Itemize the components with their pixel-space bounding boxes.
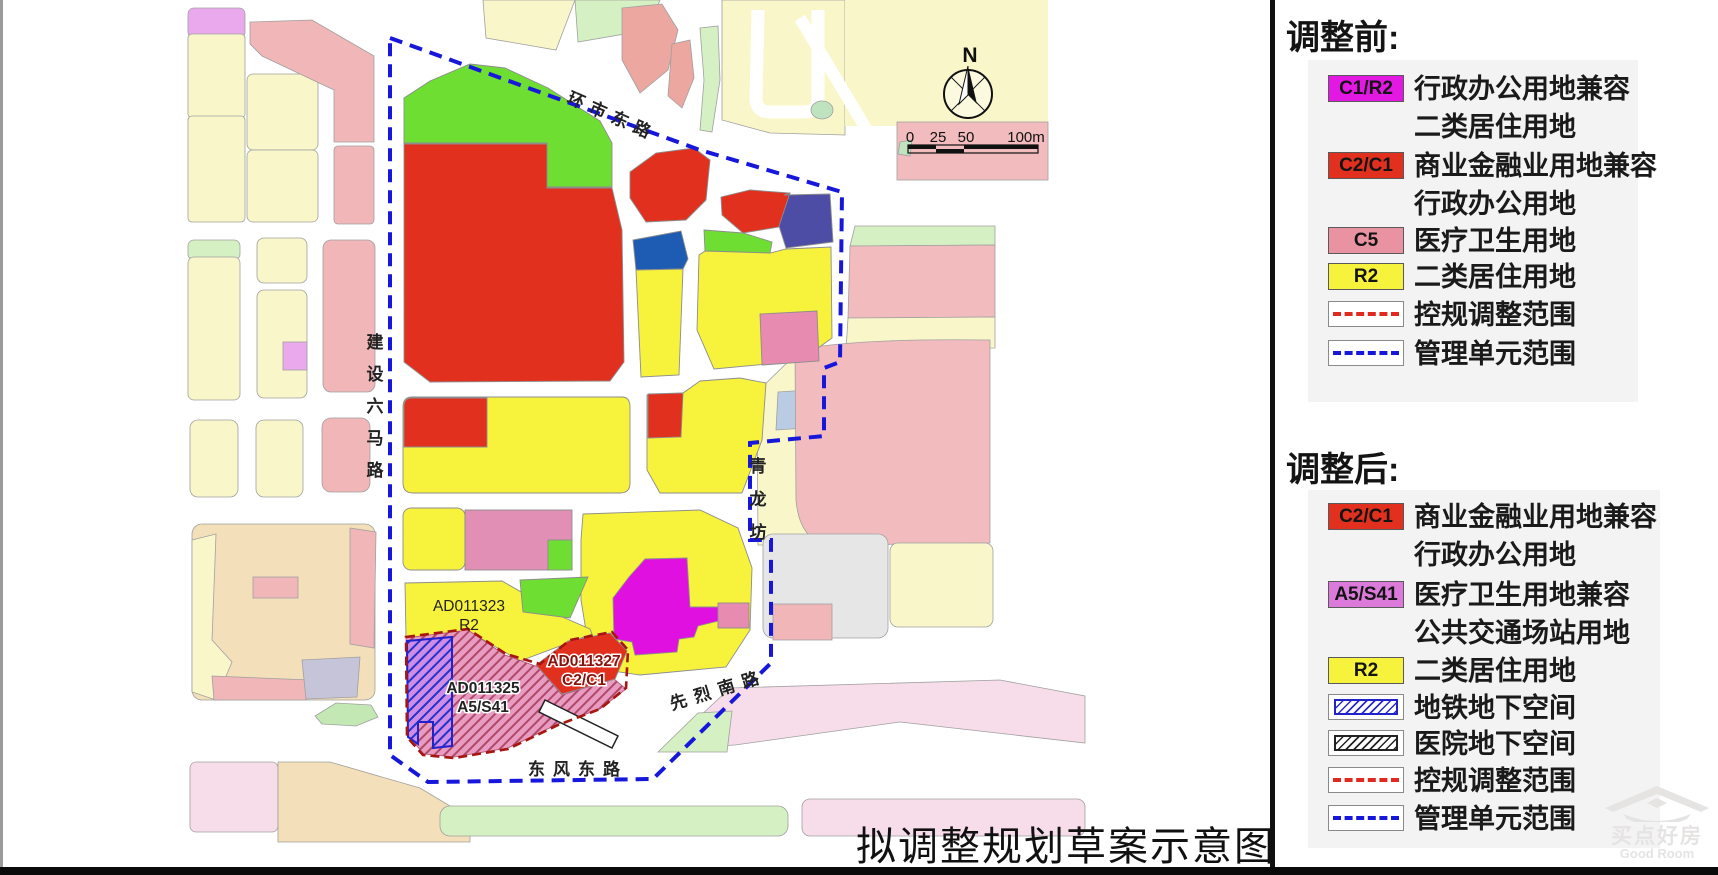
- planning-map: 环市东路 建 设 六 马 路 青 龙 坊 先烈南路 东风东路 AD011323 …: [0, 0, 1270, 867]
- parcel: [483, 0, 575, 50]
- parcel-blue: [633, 231, 688, 270]
- parcel: [188, 8, 245, 38]
- scale-tick-25: 25: [930, 129, 947, 146]
- parcel: [212, 676, 310, 700]
- parcel-red: [404, 398, 487, 447]
- svg-text:六: 六: [367, 396, 384, 416]
- legend-chip-c5: C5: [1328, 227, 1404, 254]
- legend-label: 二类居住用地: [1414, 657, 1576, 686]
- watermark-text-en: Good Room: [1596, 847, 1718, 861]
- svg-text:建: 建: [367, 332, 384, 352]
- watermark-text-cn: 买点好房: [1596, 827, 1718, 847]
- legend-chip-r2: R2: [1328, 263, 1404, 290]
- parcel-green: [548, 540, 572, 570]
- legend-label: 商业金融业用地兼容: [1414, 152, 1657, 181]
- legend-swatch-blue-dash: [1328, 340, 1404, 366]
- legend-swatch-metro-hatch: [1328, 694, 1404, 720]
- parcel-r2: [636, 269, 683, 377]
- legend-chip-c2c1: C2/C1: [1328, 503, 1404, 530]
- legend-chip-c1r2: C1/R2: [1328, 75, 1404, 102]
- legend-label: 地铁地下空间: [1414, 694, 1576, 723]
- parcel: [773, 604, 832, 640]
- parcel-green: [520, 577, 588, 618]
- legend-label: 控规调整范围: [1414, 767, 1576, 796]
- parcel-red: [630, 148, 710, 222]
- parcel: [247, 74, 318, 150]
- caption: 拟调整规划草案示意图: [856, 814, 1276, 872]
- svg-text:马: 马: [367, 429, 384, 448]
- parcel: [190, 762, 278, 832]
- legend-label: 行政办公用地兼容: [1414, 75, 1630, 104]
- legend-label: 二类居住用地: [1414, 263, 1576, 292]
- legend-label: 医疗卫生用地: [1414, 227, 1576, 256]
- legend-label: 控规调整范围: [1414, 301, 1576, 330]
- parcel: [315, 703, 378, 726]
- parcel: [322, 418, 370, 492]
- legend-before-title: 调整前:: [1286, 10, 1399, 59]
- parcel: [283, 342, 307, 370]
- parcel-indigo: [779, 193, 833, 248]
- parcel-label-ad011323-code: AD011323: [433, 598, 505, 615]
- parcel-label-ad011327-use: C2/C1: [562, 672, 606, 689]
- parcel: [253, 577, 298, 598]
- planning-page: 环市东路 建 设 六 马 路 青 龙 坊 先烈南路 东风东路 AD011323 …: [0, 0, 1718, 875]
- parcel-c5: [760, 311, 819, 365]
- parcel-c5: [718, 603, 749, 628]
- parcel-red: [648, 393, 683, 438]
- legend-divider: [1270, 0, 1275, 867]
- legend-swatch-red-dash: [1328, 767, 1404, 793]
- parcel: [700, 26, 720, 132]
- parcel: [334, 146, 374, 224]
- parcel: [247, 150, 318, 222]
- legend-label: 商业金融业用地兼容: [1414, 503, 1657, 532]
- svg-text:龙: 龙: [749, 489, 767, 509]
- legend-chip-r2: R2: [1328, 657, 1404, 684]
- watermark-house-icon: [1605, 786, 1709, 822]
- parcel: [188, 116, 245, 222]
- page-left-edge: [0, 0, 3, 875]
- parcel: [257, 238, 307, 283]
- parcel: [850, 226, 995, 246]
- parcel-green-strip: [704, 230, 772, 253]
- svg-text:设: 设: [367, 365, 384, 384]
- parcel: [188, 257, 240, 400]
- scale-tick-0: 0: [906, 129, 914, 146]
- parcel: [188, 34, 245, 118]
- scale-tick-100m: 100m: [1007, 129, 1045, 146]
- legend-swatch-red-dash: [1328, 301, 1404, 327]
- parcel: [668, 40, 694, 108]
- legend-label: 公共交通场站用地: [1414, 619, 1630, 648]
- parcel: [256, 420, 303, 497]
- legend-after-title: 调整后:: [1286, 442, 1399, 491]
- parcel: [795, 340, 990, 545]
- parcel: [811, 101, 833, 119]
- parcel: [190, 420, 238, 497]
- scale-tick-50: 50: [958, 129, 975, 146]
- parcel-r2: [403, 508, 465, 570]
- parcel-label-ad011323-use: R2: [459, 617, 479, 634]
- legend-label: 二类居住用地: [1414, 113, 1576, 142]
- svg-text:路: 路: [367, 460, 385, 480]
- legend-chip-c2c1: C2/C1: [1328, 152, 1404, 179]
- page-bottom-edge: [0, 867, 1718, 875]
- parcel: [302, 657, 360, 699]
- legend-label: 管理单元范围: [1414, 340, 1576, 369]
- north-label: N: [962, 44, 977, 67]
- parcel: [440, 806, 788, 836]
- parcel: [658, 711, 732, 752]
- watermark: 买点好房 Good Room: [1596, 786, 1718, 861]
- svg-text:青: 青: [750, 456, 767, 476]
- parcel: [845, 0, 1048, 126]
- parcel-label-ad011325-code: AD011325: [446, 680, 520, 697]
- legend-label: 行政办公用地: [1414, 190, 1576, 219]
- parcel-label-ad011327-code: AD011327: [547, 653, 620, 670]
- parcel: [848, 245, 995, 318]
- legend-chip-a5s41: A5/S41: [1328, 581, 1404, 608]
- legend-swatch-hospital-hatch: [1328, 730, 1404, 756]
- parcel: [890, 543, 993, 627]
- parcel: [350, 528, 376, 648]
- legend-label: 行政办公用地: [1414, 541, 1576, 570]
- legend-label: 管理单元范围: [1414, 805, 1576, 834]
- legend-swatch-blue-dash: [1328, 805, 1404, 831]
- parcel-label-ad011325-use: A5/S41: [457, 699, 509, 716]
- svg-text:坊: 坊: [750, 522, 767, 542]
- legend-label: 医院地下空间: [1414, 730, 1576, 759]
- road-label-dongfeng-dong: 东风东路: [528, 759, 628, 779]
- legend-label: 医疗卫生用地兼容: [1414, 581, 1630, 610]
- road-label-qinglong-fang: 青 龙 坊: [749, 456, 767, 542]
